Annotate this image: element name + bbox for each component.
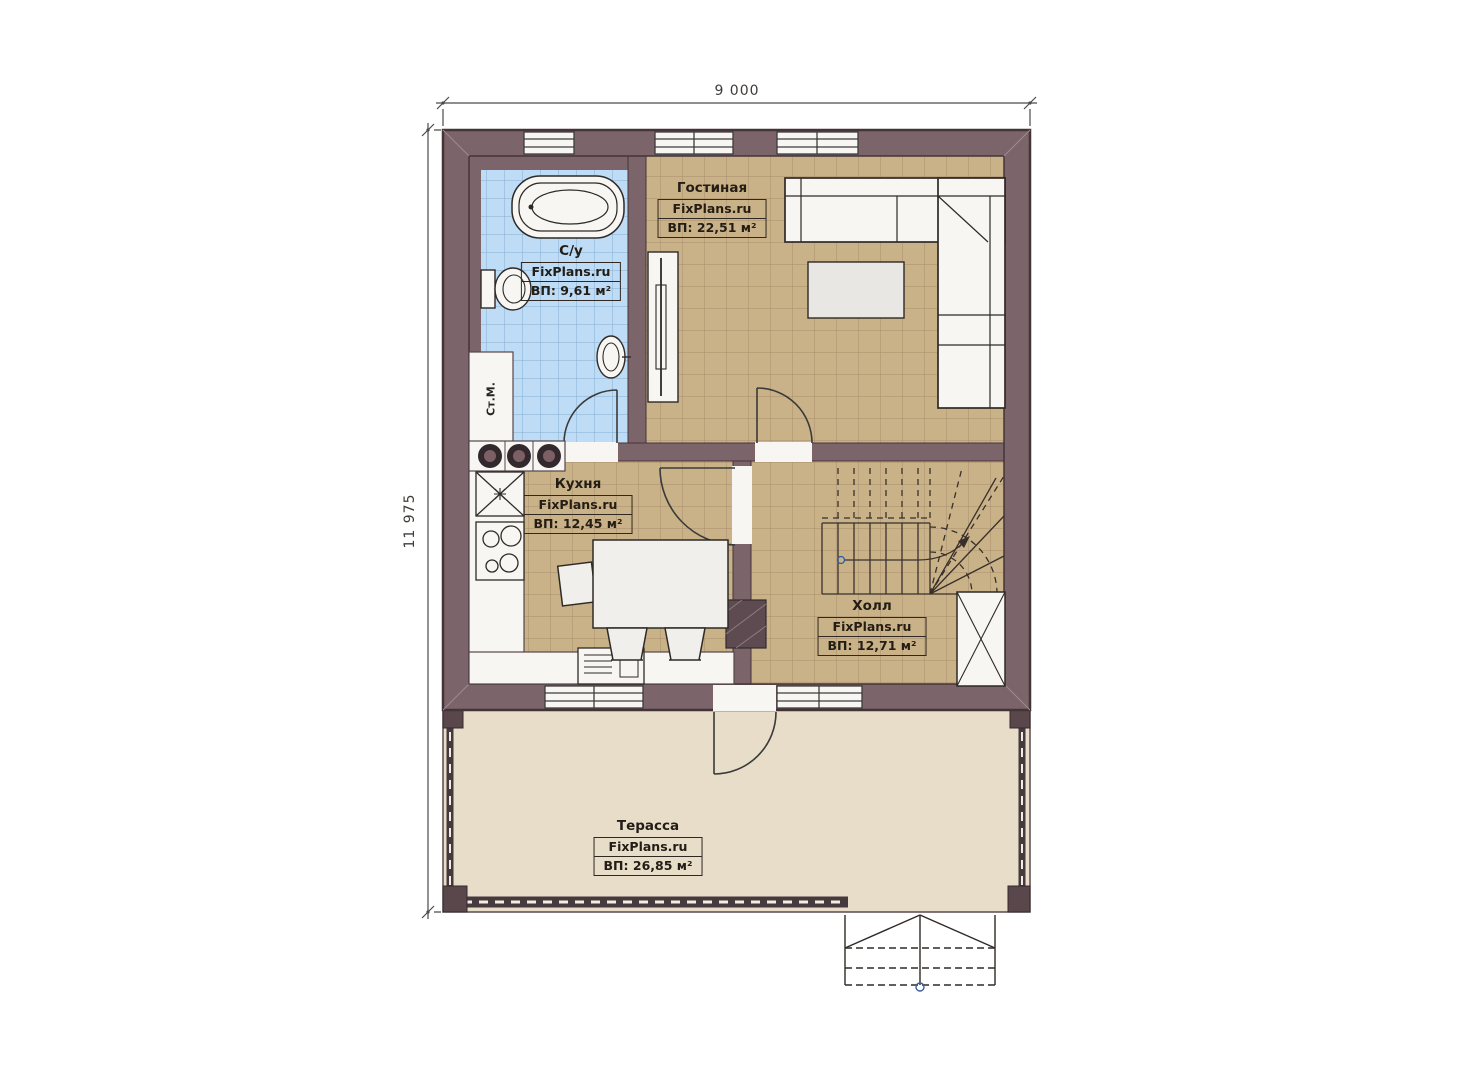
room-label-hall: Холл FixPlans.ru ВП: 12,71 м² [818, 598, 927, 656]
room-name: Кухня [524, 476, 633, 492]
room-brand: FixPlans.ru [819, 618, 926, 637]
chair [558, 562, 597, 606]
chair [665, 628, 705, 660]
room-info-box: FixPlans.ru ВП: 9,61 м² [521, 262, 621, 301]
room-brand: FixPlans.ru [525, 496, 632, 515]
room-area: ВП: 22,51 м² [659, 219, 766, 237]
gas-stove [476, 522, 524, 580]
window-top-living-1 [655, 132, 733, 154]
tv-stand [648, 252, 678, 402]
floor-plan-drawing [0, 0, 1473, 1080]
dimension-width-label: 9 000 [714, 83, 759, 99]
room-label-terrace: Терасса FixPlans.ru ВП: 26,85 м² [594, 818, 703, 876]
dimension-height-line [422, 123, 441, 919]
room-name: Терасса [594, 818, 703, 834]
room-area: ВП: 9,61 м² [522, 282, 620, 300]
kitchen-sink [476, 472, 524, 516]
coffee-table [808, 262, 904, 318]
cooktop [478, 441, 561, 471]
dimension-width-line [436, 97, 1037, 126]
room-info-box: FixPlans.ru ВП: 26,85 м² [594, 837, 703, 876]
room-info-box: FixPlans.ru ВП: 12,45 м² [524, 495, 633, 534]
kitchen-door-opening [732, 466, 752, 544]
room-name: С/у [521, 243, 621, 259]
room-name: Холл [818, 598, 927, 614]
window-bottom-kitchen [545, 686, 643, 708]
room-area: ВП: 26,85 м² [595, 857, 702, 875]
window-top-living-2 [777, 132, 858, 154]
floor-plan-canvas: 9 000 11 975 Ст.М. С/у FixPlans.ru ВП: 9… [0, 0, 1473, 1080]
room-label-kitchen: Кухня FixPlans.ru ВП: 12,45 м² [524, 476, 633, 534]
terrace-floor [443, 710, 1030, 912]
room-brand: FixPlans.ru [659, 200, 766, 219]
chair [607, 628, 647, 660]
room-name: Гостиная [658, 180, 767, 196]
room-brand: FixPlans.ru [522, 263, 620, 282]
room-label-living-room: Гостиная FixPlans.ru ВП: 22,51 м² [658, 180, 767, 238]
terrace-steps [845, 915, 995, 991]
living-room-door-opening [755, 442, 812, 462]
washing-machine-label: Ст.М. [485, 382, 498, 416]
room-label-bathroom: С/у FixPlans.ru ВП: 9,61 м² [521, 243, 621, 301]
room-info-box: FixPlans.ru ВП: 22,51 м² [658, 199, 767, 238]
room-brand: FixPlans.ru [595, 838, 702, 857]
window-bottom-hall [777, 686, 862, 708]
room-info-box: FixPlans.ru ВП: 12,71 м² [818, 617, 927, 656]
wardrobe [957, 592, 1005, 686]
bathtub [512, 176, 624, 238]
dimension-height-label: 11 975 [402, 494, 418, 549]
terrace-door-opening [713, 685, 776, 711]
flue-column [726, 600, 766, 648]
room-area: ВП: 12,45 м² [525, 515, 632, 533]
bathroom-door-opening [563, 442, 618, 462]
room-area: ВП: 12,71 м² [819, 637, 926, 655]
window-top-bathroom [524, 132, 574, 154]
